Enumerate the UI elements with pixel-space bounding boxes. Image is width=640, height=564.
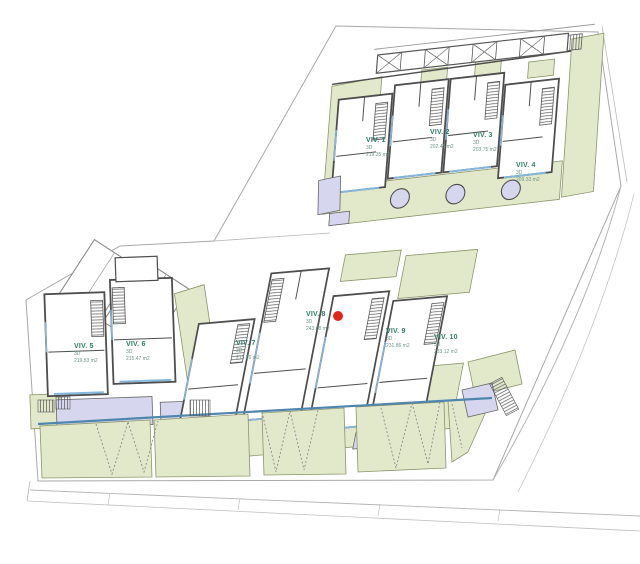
street-sidewalk-lines — [27, 481, 640, 531]
unit-name: VIV. 7 — [236, 339, 260, 348]
unit-label-viv-1: VIV. 1 3D 219.35 m2 — [366, 136, 390, 158]
unit-area: 219.35 m2 — [366, 152, 390, 159]
unit-label-viv-2: VIV. 2 3D 202.45 m2 — [430, 128, 454, 150]
unit-label-viv-8: VIV. 8 3D 243.68 m2 — [306, 310, 330, 332]
unit-name: VIV. 4 — [516, 161, 540, 170]
unit-area: 243.68 m2 — [306, 326, 330, 333]
unit-label-viv-4: VIV. 4 3D 209.33 m2 — [516, 161, 540, 183]
unit-label-viv-3: VIV. 3 3D 203.75 m2 — [473, 131, 497, 153]
unit-area: 219.53 m2 — [74, 358, 98, 365]
unit-area: 213.26 m2 — [236, 355, 260, 362]
unit-label-viv-5: VIV. 5 3D 219.53 m2 — [74, 342, 98, 364]
unit-name: VIV. 10 — [434, 333, 458, 342]
unit-area: 202.45 m2 — [430, 144, 454, 151]
unit-area: 203.75 m2 — [473, 147, 497, 154]
unit-area: 215.47 m2 — [126, 356, 150, 363]
selected-unit-marker[interactable] — [333, 311, 343, 321]
unit-name: VIV. 3 — [473, 131, 497, 140]
floor-plan-drawing — [0, 0, 640, 564]
unit-label-viv-7: VIV. 7 3D 213.26 m2 — [236, 339, 260, 361]
unit-label-viv-9: VIV. 9 3D 231.86 m2 — [386, 327, 410, 349]
unit-label-viv-6: VIV. 6 3D 215.47 m2 — [126, 340, 150, 362]
site-plan-canvas: VIV. 1 3D 219.35 m2 VIV. 2 3D 202.45 m2 … — [0, 0, 640, 564]
upper-row-houses — [315, 23, 607, 227]
unit-area: 231.86 m2 — [386, 343, 410, 350]
unit-area: 233.12 m2 — [434, 349, 458, 356]
unit-name: VIV. 9 — [386, 327, 410, 336]
stairs-hatch — [567, 34, 582, 51]
unit-name: VIV. 8 — [306, 310, 330, 319]
unit-name: VIV. 2 — [430, 128, 454, 137]
unit-name: VIV. 1 — [366, 136, 390, 145]
unit-label-viv-10: VIV. 10 3D 233.12 m2 — [434, 333, 458, 355]
unit-name: VIV. 5 — [74, 342, 98, 351]
unit-area: 209.33 m2 — [516, 177, 540, 184]
unit-name: VIV. 6 — [126, 340, 150, 349]
